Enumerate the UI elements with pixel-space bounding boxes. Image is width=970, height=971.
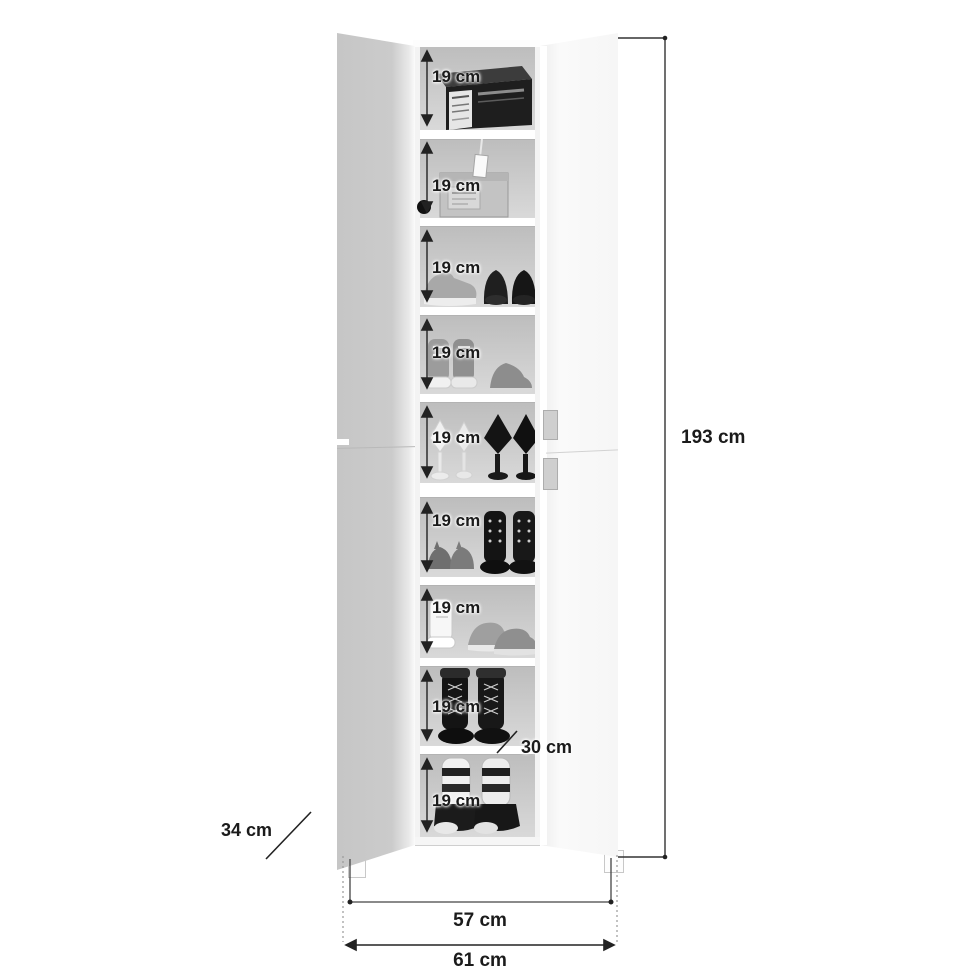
compartment-height-label: 19 cm xyxy=(432,512,480,529)
left-door-open xyxy=(337,33,415,870)
right-door-inner-edge xyxy=(540,46,547,845)
high-top-and-running-shoes-illustration xyxy=(420,585,540,658)
total-height-line xyxy=(618,38,665,857)
right-door-open xyxy=(540,33,618,857)
depth-line xyxy=(266,812,311,859)
compartment-height-label: 19 cm xyxy=(432,792,480,809)
black-shoe-box-illustration xyxy=(420,46,540,130)
cabinet-top-board xyxy=(413,40,540,47)
flats-and-ankle-boots-illustration xyxy=(420,497,540,577)
inner-width-line xyxy=(350,858,611,902)
compartment-height-label: 19 cm xyxy=(432,68,480,85)
depth-label: 34 cm xyxy=(221,821,272,839)
left-door-gap xyxy=(337,439,349,445)
left-door-seam xyxy=(337,446,415,449)
shelf-depth-label: 30 cm xyxy=(521,738,572,756)
interior-left-wall xyxy=(415,40,420,845)
total-width-line xyxy=(343,855,617,945)
door-knob xyxy=(417,200,431,214)
total-width-label: 61 cm xyxy=(420,951,540,970)
compartment-height-label: 19 cm xyxy=(432,698,480,715)
interior-right-wall xyxy=(535,40,540,845)
compartment-height-label: 19 cm xyxy=(432,429,480,446)
right-door-seam xyxy=(546,449,618,453)
shoe-cabinet-dimension-diagram: { "diagram": { "title": "shoe cabinet di… xyxy=(0,0,970,971)
door-handle-upper xyxy=(543,410,558,440)
compartment-height-label: 19 cm xyxy=(432,259,480,276)
door-handle-lower xyxy=(543,458,558,490)
inner-width-label: 57 cm xyxy=(420,911,540,930)
cabinet-base-board xyxy=(415,837,540,846)
compartment-height-label: 19 cm xyxy=(432,177,480,194)
compartment-height-label: 19 cm xyxy=(432,344,480,361)
total-height-label: 193 cm xyxy=(681,428,745,447)
compartment-height-label: 19 cm xyxy=(432,599,480,616)
shelf-middle-divider xyxy=(415,483,540,498)
